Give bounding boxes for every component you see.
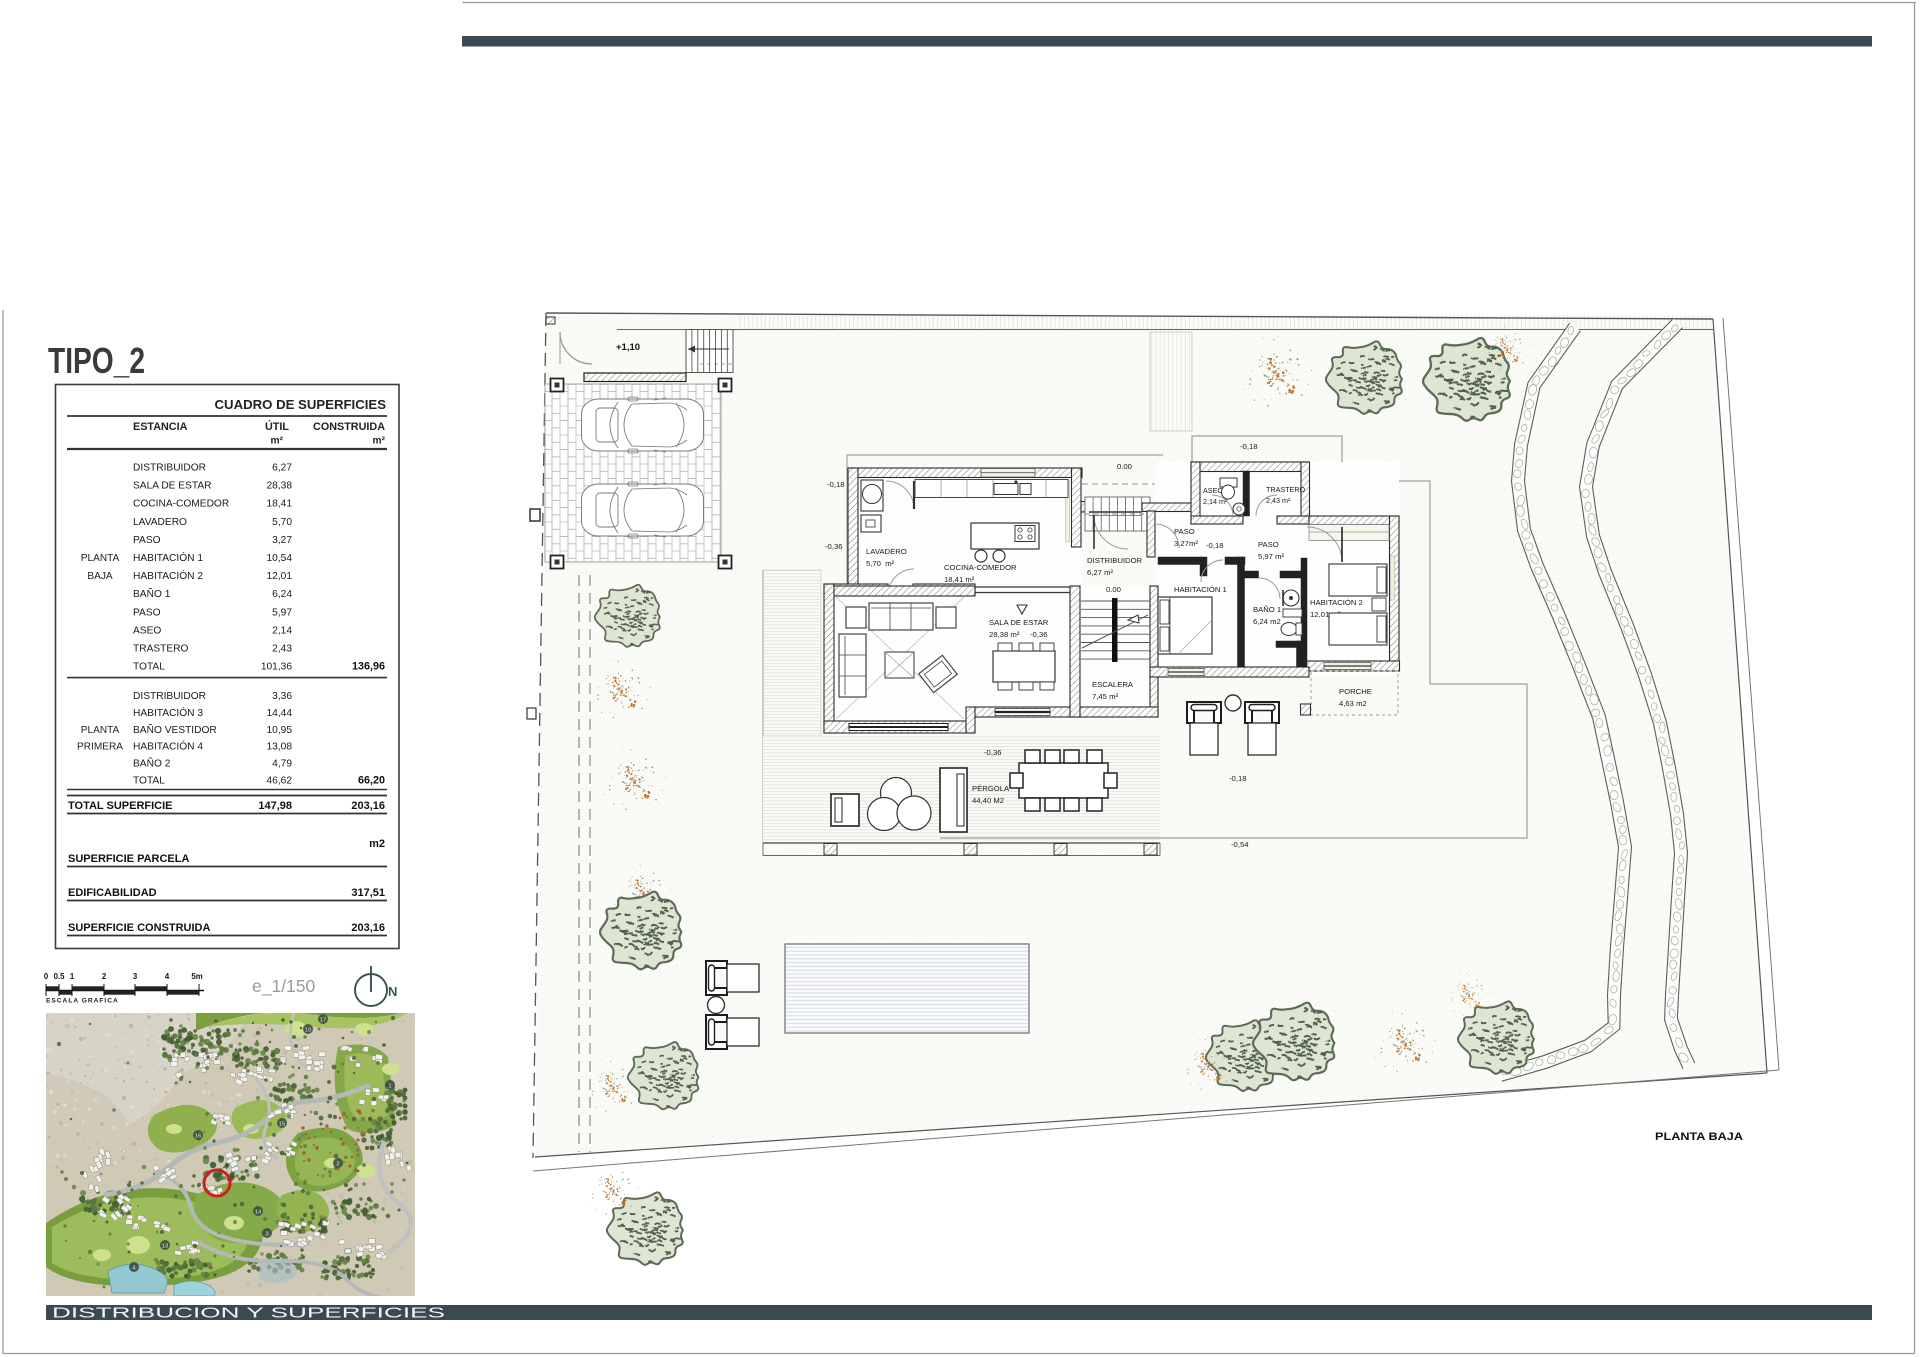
svg-text:TOTAL: TOTAL: [133, 776, 165, 787]
svg-text:BAÑO VESTIDOR: BAÑO VESTIDOR: [133, 723, 217, 736]
svg-text:3,36: 3,36: [272, 691, 292, 702]
svg-text:2,14: 2,14: [272, 625, 292, 636]
svg-text:28,38: 28,38: [267, 481, 293, 492]
svg-text:-0,36: -0,36: [1030, 630, 1048, 639]
svg-text:e_1/150: e_1/150: [252, 976, 316, 997]
svg-text:18,41 m²: 18,41 m²: [944, 575, 975, 584]
svg-text:4: 4: [165, 972, 170, 981]
svg-text:BAÑO 2: BAÑO 2: [133, 757, 171, 770]
svg-text:EDIFICABILIDAD: EDIFICABILIDAD: [68, 887, 157, 899]
svg-text:N: N: [388, 984, 397, 999]
svg-text:-0,18: -0,18: [1206, 541, 1224, 550]
svg-text:PASO: PASO: [1174, 527, 1195, 536]
svg-text:HABITACIÓN 2: HABITACIÓN 2: [133, 569, 203, 582]
svg-text:5,70 m²: 5,70 m²: [866, 559, 895, 568]
svg-text:SUPERFICIE PARCELA: SUPERFICIE PARCELA: [68, 853, 189, 865]
svg-text:136,96: 136,96: [352, 661, 385, 673]
svg-text:-0,54: -0,54: [1231, 840, 1249, 849]
svg-text:ÚTIL: ÚTIL: [265, 420, 289, 433]
svg-text:TIPO_2: TIPO_2: [48, 340, 145, 381]
svg-text:5,70: 5,70: [272, 517, 292, 528]
svg-text:PLANTA: PLANTA: [81, 553, 120, 564]
svg-text:m2: m2: [369, 838, 385, 850]
svg-text:6,27 m²: 6,27 m²: [1087, 568, 1114, 577]
svg-text:SALA DE ESTAR: SALA DE ESTAR: [989, 618, 1049, 627]
svg-text:-0,18: -0,18: [1229, 774, 1247, 783]
svg-text:17: 17: [320, 1017, 326, 1023]
svg-text:TRASTERO: TRASTERO: [133, 644, 189, 655]
svg-text:ESCALA GRAFICA: ESCALA GRAFICA: [46, 998, 119, 1005]
svg-text:PLANTA BAJA: PLANTA BAJA: [1655, 1131, 1743, 1143]
svg-text:TOTAL: TOTAL: [133, 662, 165, 673]
svg-text:-0,18: -0,18: [1240, 442, 1258, 451]
svg-text:6,27: 6,27: [272, 463, 292, 474]
svg-text:CONSTRUIDA: CONSTRUIDA: [313, 421, 385, 433]
svg-text:ESCALERA: ESCALERA: [1092, 680, 1134, 689]
svg-text:1: 1: [388, 1083, 391, 1089]
svg-text:BAÑO 1: BAÑO 1: [1253, 605, 1281, 614]
svg-text:PLANTA: PLANTA: [81, 725, 120, 736]
svg-text:PRIMERA: PRIMERA: [77, 742, 123, 753]
svg-text:0.00: 0.00: [1106, 585, 1121, 594]
svg-text:m²: m²: [271, 436, 284, 447]
svg-text:BAÑO 1: BAÑO 1: [133, 587, 171, 600]
svg-text:3: 3: [265, 1231, 268, 1237]
svg-text:203,16: 203,16: [351, 922, 385, 934]
svg-text:CUADRO DE SUPERFICIES: CUADRO DE SUPERFICIES: [215, 397, 387, 412]
svg-text:DISTRIBUIDOR: DISTRIBUIDOR: [133, 463, 206, 474]
svg-text:COCINA-COMEDOR: COCINA-COMEDOR: [944, 563, 1017, 572]
svg-text:46,62: 46,62: [267, 776, 293, 787]
svg-text:DISTRIBUIDOR: DISTRIBUIDOR: [1087, 556, 1143, 565]
svg-text:5m: 5m: [191, 972, 202, 981]
svg-text:16: 16: [195, 1133, 201, 1139]
svg-text:PÉRGOLA: PÉRGOLA: [972, 784, 1010, 793]
svg-text:0.5: 0.5: [54, 972, 66, 981]
svg-text:12,01: 12,01: [267, 571, 293, 582]
svg-text:101,36: 101,36: [261, 662, 292, 673]
svg-text:2,43: 2,43: [272, 644, 292, 655]
svg-text:-0,36: -0,36: [984, 748, 1002, 757]
svg-text:28,38 m²: 28,38 m²: [989, 630, 1020, 639]
svg-text:HABITACIÓN 4: HABITACIÓN 4: [133, 740, 203, 753]
svg-text:PASO: PASO: [1258, 540, 1279, 549]
svg-text:5,97: 5,97: [272, 607, 292, 618]
svg-text:18,41: 18,41: [267, 499, 293, 510]
svg-text:2,43 m²: 2,43 m²: [1266, 496, 1291, 505]
svg-text:HABITACIÓN 2: HABITACIÓN 2: [1310, 598, 1363, 607]
svg-text:10: 10: [305, 1027, 311, 1033]
svg-text:DISTRIBUCION Y SUPERFICIES: DISTRIBUCION Y SUPERFICIES: [52, 1305, 445, 1322]
svg-text:3: 3: [133, 972, 138, 981]
svg-text:SUPERFICIE CONSTRUIDA: SUPERFICIE CONSTRUIDA: [68, 922, 210, 934]
svg-text:LAVADERO: LAVADERO: [133, 517, 187, 528]
svg-text:TOTAL SUPERFICIE: TOTAL SUPERFICIE: [68, 800, 173, 812]
svg-text:+1,10: +1,10: [616, 342, 640, 353]
svg-text:COCINA-COMEDOR: COCINA-COMEDOR: [133, 499, 229, 510]
svg-text:203,16: 203,16: [351, 800, 385, 812]
svg-text:3,27: 3,27: [272, 535, 292, 546]
svg-text:TRASTERO: TRASTERO: [1266, 485, 1306, 494]
svg-text:SALA DE ESTAR: SALA DE ESTAR: [133, 481, 212, 492]
svg-text:HABITACIÓN 3: HABITACIÓN 3: [133, 706, 203, 719]
svg-text:13: 13: [162, 1243, 168, 1249]
svg-text:147,98: 147,98: [258, 800, 292, 812]
svg-text:7,45 m²: 7,45 m²: [1092, 692, 1119, 701]
svg-text:PASO: PASO: [133, 607, 161, 618]
svg-text:DISTRIBUIDOR: DISTRIBUIDOR: [133, 691, 206, 702]
svg-text:0.00: 0.00: [1117, 462, 1132, 471]
svg-text:1: 1: [70, 972, 75, 981]
svg-text:10,54: 10,54: [267, 553, 293, 564]
svg-text:14: 14: [255, 1209, 262, 1215]
svg-text:13,08: 13,08: [267, 742, 293, 753]
svg-text:15: 15: [279, 1121, 285, 1127]
svg-text:0: 0: [44, 972, 49, 981]
svg-text:317,51: 317,51: [351, 887, 385, 899]
svg-text:BAJA: BAJA: [87, 571, 113, 582]
svg-text:HABITACIÓN 1: HABITACIÓN 1: [1174, 585, 1227, 594]
svg-text:-0,18: -0,18: [827, 480, 845, 489]
svg-text:m²: m²: [373, 436, 386, 447]
svg-text:PORCHE: PORCHE: [1339, 687, 1372, 696]
svg-text:PASO: PASO: [133, 535, 161, 546]
svg-text:66,20: 66,20: [358, 775, 385, 787]
svg-text:6,24: 6,24: [272, 589, 292, 600]
svg-text:14,44: 14,44: [267, 708, 293, 719]
svg-text:ASEO: ASEO: [133, 625, 161, 636]
svg-text:5,97 m²: 5,97 m²: [1258, 552, 1285, 561]
svg-text:2: 2: [102, 972, 107, 981]
svg-text:4,79: 4,79: [272, 759, 292, 770]
svg-text:ESTANCIA: ESTANCIA: [133, 421, 188, 433]
svg-text:LAVADERO: LAVADERO: [866, 547, 907, 556]
svg-text:6,24 m2: 6,24 m2: [1253, 617, 1281, 626]
svg-text:4,63 m2: 4,63 m2: [1339, 699, 1367, 708]
svg-text:HABITACIÓN 1: HABITACIÓN 1: [133, 551, 203, 564]
svg-text:-0,36: -0,36: [825, 542, 843, 551]
svg-text:2: 2: [336, 1161, 339, 1167]
svg-text:10,95: 10,95: [267, 725, 293, 736]
svg-text:44,40 M2: 44,40 M2: [972, 796, 1004, 805]
